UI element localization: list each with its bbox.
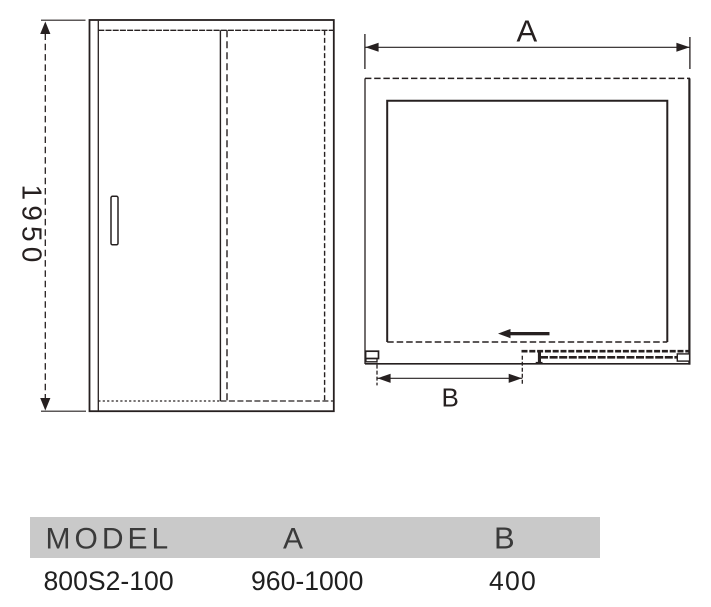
svg-text:400: 400 <box>489 566 537 596</box>
svg-text:800S2-100: 800S2-100 <box>44 566 174 596</box>
svg-text:A: A <box>283 523 303 556</box>
svg-text:960-1000: 960-1000 <box>251 566 363 596</box>
svg-text:1950: 1950 <box>16 184 47 267</box>
svg-text:MODEL: MODEL <box>46 523 173 556</box>
svg-text:B: B <box>494 521 515 556</box>
svg-text:A: A <box>517 14 538 49</box>
svg-text:B: B <box>442 383 459 413</box>
